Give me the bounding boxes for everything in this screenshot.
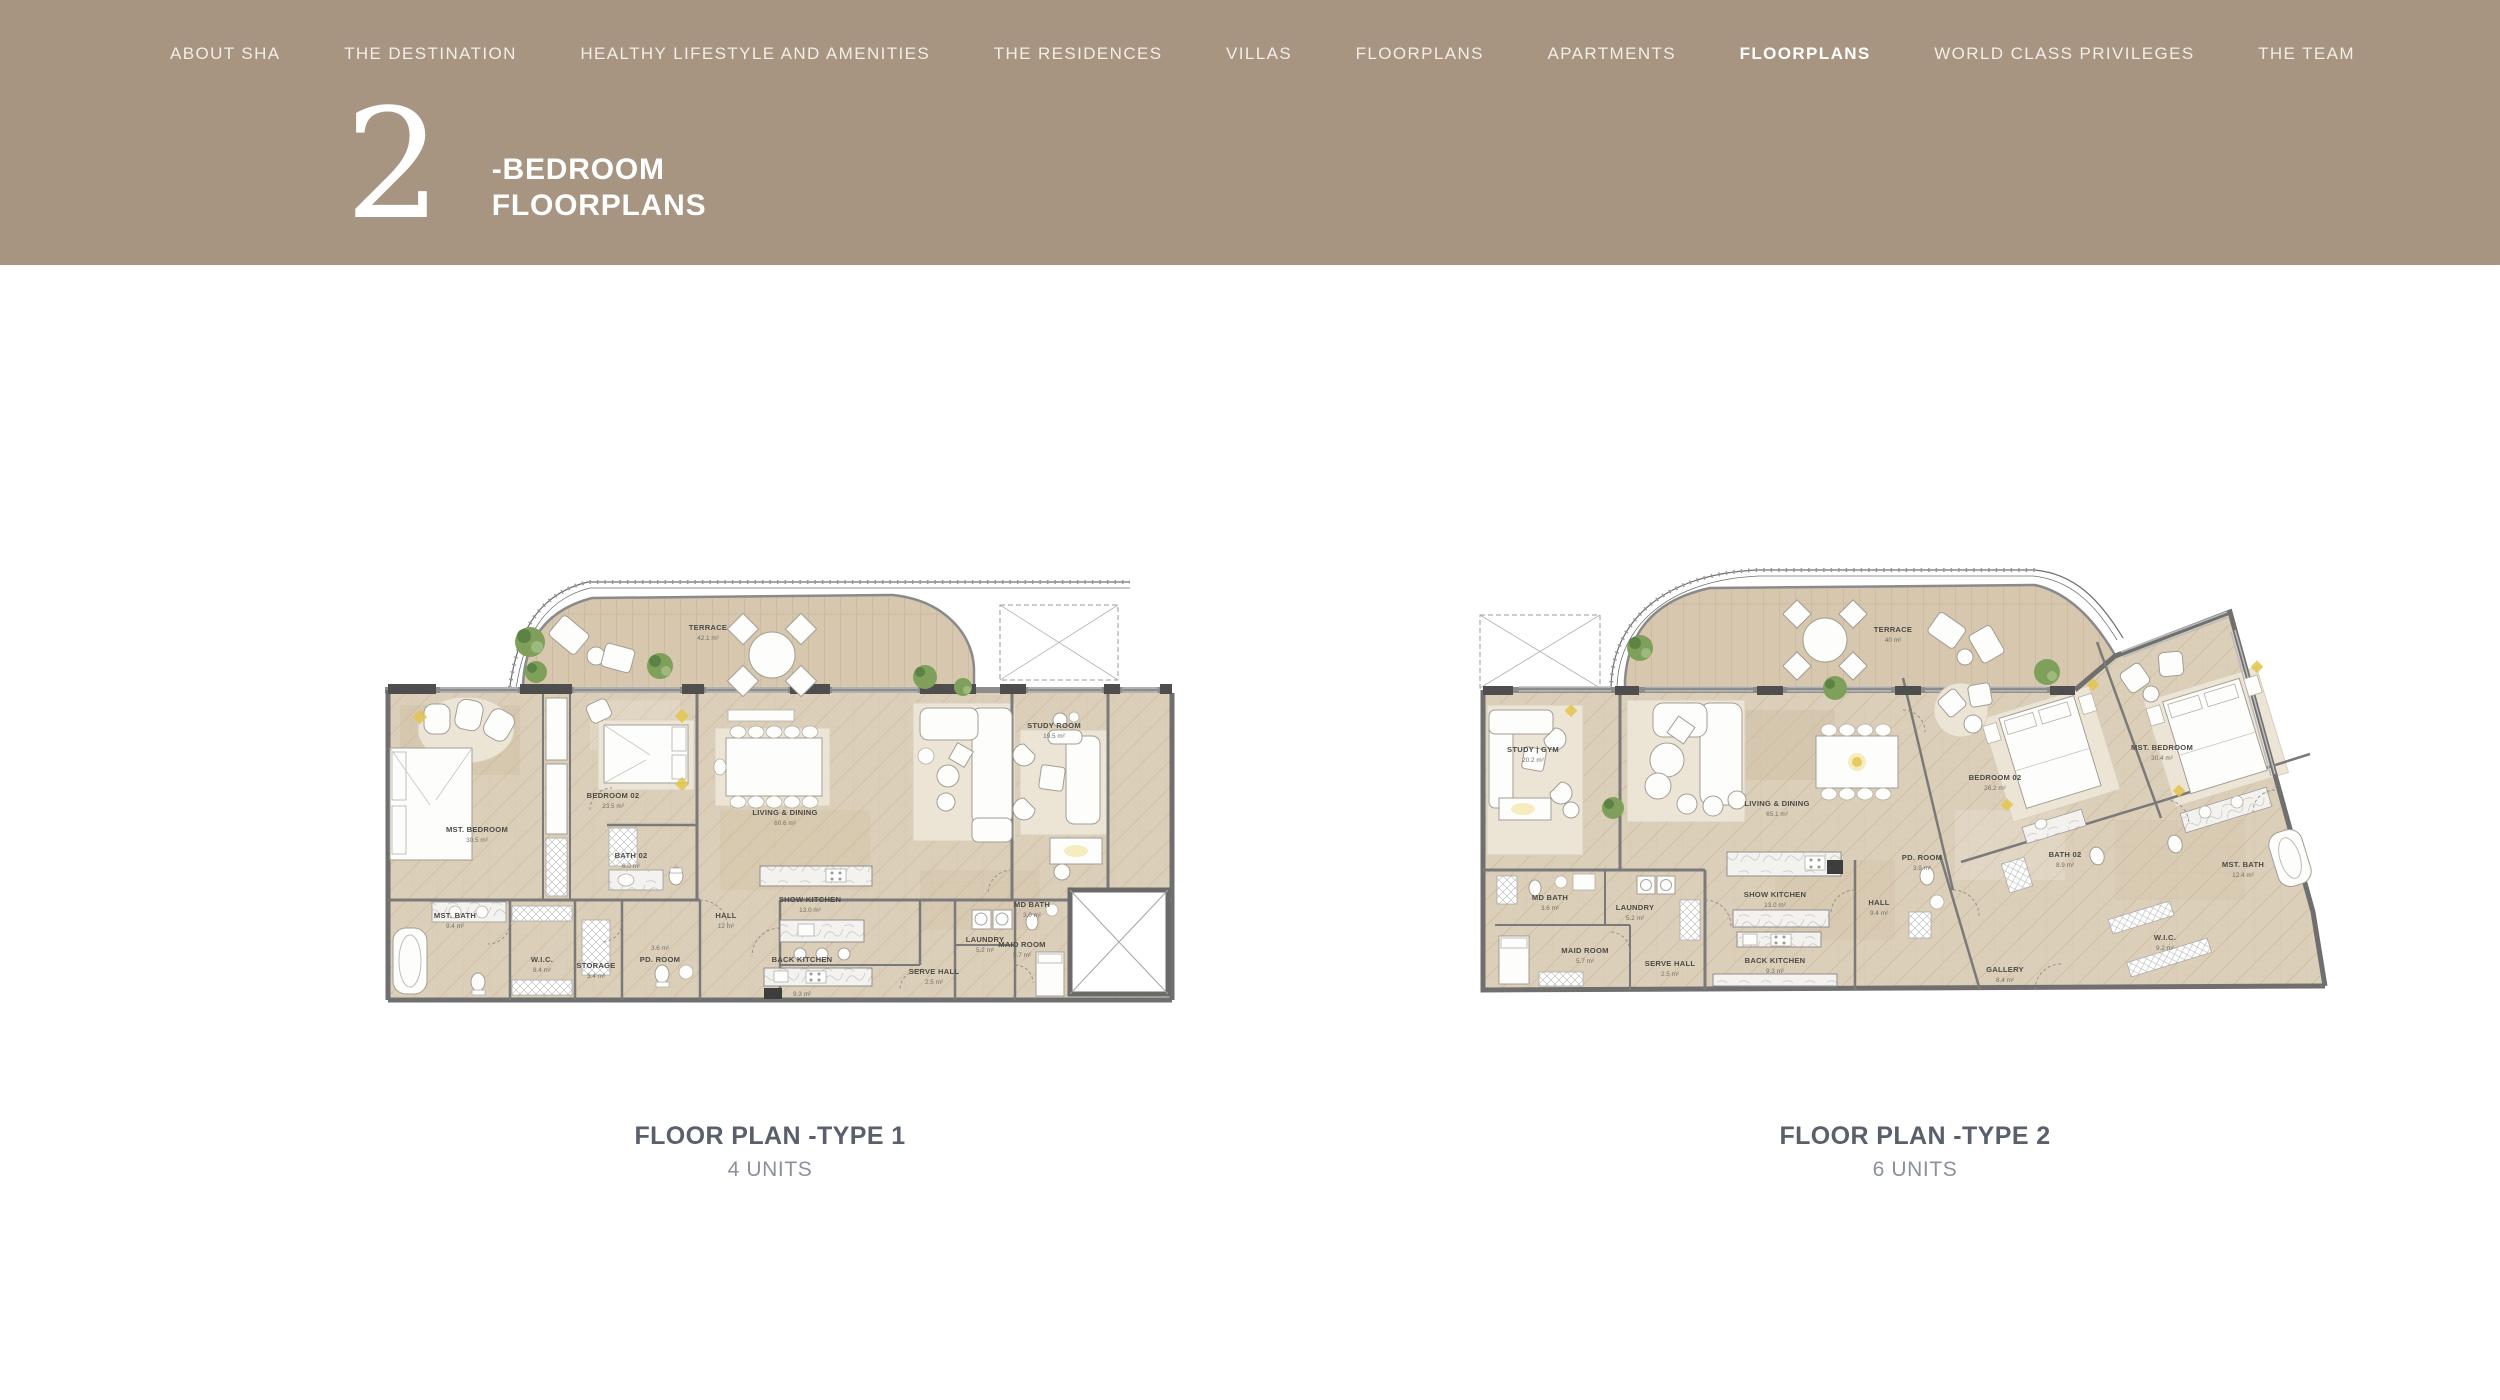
svg-text:2.5 m²: 2.5 m² <box>1661 971 1679 978</box>
plan1-title: FLOOR PLAN -TYPE 1 <box>360 1122 1180 1151</box>
label-terrace: TERRACE <box>689 623 727 632</box>
svg-text:3.0 m²: 3.0 m² <box>1023 912 1041 919</box>
floorplan-type1-drawing: TERRACE 42.1 m² MST. BEDROOM 30.5 m² BED… <box>360 570 1180 1020</box>
svg-text:30.4 m²: 30.4 m² <box>2151 755 2173 762</box>
svg-text:13.0 m²: 13.0 m² <box>799 907 821 914</box>
nav-destination[interactable]: THE DESTINATION <box>344 44 517 64</box>
label-show-kitchen: SHOW KITCHEN <box>779 895 841 904</box>
svg-text:26.2 m²: 26.2 m² <box>1984 785 2006 792</box>
label-bedroom02: BEDROOM 02 <box>587 791 640 800</box>
svg-text:9.3 m²: 9.3 m² <box>793 991 811 998</box>
nav-healthy-lifestyle[interactable]: HEALTHY LIFESTYLE AND AMENITIES <box>580 44 930 64</box>
label-living-dining: LIVING & DINING <box>1744 799 1809 808</box>
svg-text:9.4 m²: 9.4 m² <box>446 923 464 930</box>
label-laundry: LAUNDRY <box>1616 903 1655 912</box>
label-hall: HALL <box>715 911 736 920</box>
svg-text:2.5 m²: 2.5 m² <box>925 979 943 986</box>
svg-text:8.4 m²: 8.4 m² <box>1996 977 2014 984</box>
svg-text:19.5 m²: 19.5 m² <box>1043 733 1065 740</box>
svg-text:9.4 m²: 9.4 m² <box>1870 910 1888 917</box>
nav-apartments[interactable]: APARTMENTS <box>1547 44 1676 64</box>
svg-text:20.2 m²: 20.2 m² <box>1522 757 1544 764</box>
label-bath02: BATH 02 <box>615 851 648 860</box>
nav-residences[interactable]: THE RESIDENCES <box>994 44 1163 64</box>
wardrobe-closets <box>546 698 567 896</box>
title-number: 2 <box>345 100 442 230</box>
plan2-units: 6 UNITS <box>1475 1158 2355 1182</box>
label-back-kitchen: BACK KITCHEN <box>1745 956 1806 965</box>
svg-text:12.4 m²: 12.4 m² <box>2232 872 2254 879</box>
label-wic: W.I.C. <box>2154 933 2176 942</box>
label-maid-room: MAID ROOM <box>1561 946 1608 955</box>
page-title: 2 -BEDROOM FLOORPLANS <box>345 100 706 230</box>
svg-text:3.6 m²: 3.6 m² <box>651 945 669 952</box>
label-mst-bath: MST. BATH <box>2222 860 2264 869</box>
svg-text:9.3 m²: 9.3 m² <box>1766 968 1784 975</box>
svg-text:42.1 m²: 42.1 m² <box>697 635 719 642</box>
label-mst-bedroom: MST. BEDROOM <box>2131 743 2193 752</box>
label-bath02: BATH 02 <box>2049 850 2082 859</box>
title-line2: FLOORPLANS <box>492 188 707 224</box>
nav-the-team[interactable]: THE TEAM <box>2258 44 2355 64</box>
svg-text:9.2 m²: 9.2 m² <box>2156 945 2174 952</box>
plan1-caption: FLOOR PLAN -TYPE 1 4 UNITS <box>360 1122 1180 1182</box>
label-back-kitchen: BACK KITCHEN <box>772 955 833 964</box>
page: ABOUT SHA THE DESTINATION HEALTHY LIFEST… <box>0 0 2500 1400</box>
label-md-bath: MD BATH <box>1532 893 1568 902</box>
plan2-title: FLOOR PLAN -TYPE 2 <box>1475 1122 2355 1151</box>
svg-text:23.5 m²: 23.5 m² <box>602 803 624 810</box>
nav-world-class-privileges[interactable]: WORLD CLASS PRIVILEGES <box>1934 44 2194 64</box>
void-crossed-box <box>1000 605 1118 680</box>
svg-text:3.9 m²: 3.9 m² <box>1913 865 1931 872</box>
nav-about-sha[interactable]: ABOUT SHA <box>170 44 281 64</box>
label-mst-bath: MST. BATH <box>434 911 476 920</box>
label-pd-room: PD. ROOM <box>1902 853 1942 862</box>
label-serve-hall: SERVE HALL <box>909 967 960 976</box>
label-storage: STORAGE <box>576 961 615 970</box>
svg-text:3.4 m²: 3.4 m² <box>587 973 605 980</box>
label-living-dining: LIVING & DINING <box>752 808 817 817</box>
void-crossed-box <box>1480 615 1600 688</box>
nav-floorplans-1[interactable]: FLOORPLANS <box>1356 44 1484 64</box>
label-mst-bedroom: MST. BEDROOM <box>446 825 508 834</box>
svg-text:5.7 m²: 5.7 m² <box>1576 958 1594 965</box>
plan2-caption: FLOOR PLAN -TYPE 2 6 UNITS <box>1475 1122 2355 1182</box>
label-serve-hall: SERVE HALL <box>1645 959 1696 968</box>
label-study-room: STUDY ROOM <box>1027 721 1081 730</box>
label-bedroom02: BEDROOM 02 <box>1969 773 2022 782</box>
svg-text:8.4 m²: 8.4 m² <box>533 967 551 974</box>
header-banner: ABOUT SHA THE DESTINATION HEALTHY LIFEST… <box>0 0 2500 265</box>
svg-text:40 m²: 40 m² <box>1885 637 1901 644</box>
label-maid-room: MAID ROOM <box>998 940 1045 949</box>
label-show-kitchen: SHOW KITCHEN <box>1744 890 1806 899</box>
svg-text:65.1 m²: 65.1 m² <box>1766 811 1788 818</box>
svg-text:5.7 m²: 5.7 m² <box>1013 952 1031 959</box>
label-terrace: TERRACE <box>1874 625 1912 634</box>
nav-floorplans-active[interactable]: FLOORPLANS <box>1740 44 1871 64</box>
svg-text:13.0 m²: 13.0 m² <box>1764 902 1786 909</box>
label-wic: W.I.C. <box>531 955 553 964</box>
label-gallery: GALLERY <box>1986 965 2024 974</box>
svg-text:5.2 m²: 5.2 m² <box>976 947 994 954</box>
nav-villas[interactable]: VILLAS <box>1226 44 1292 64</box>
floorplan-type2: TERRACE 40 m² STUDY | GYM 20.2 m² LIVING… <box>1475 560 2355 1020</box>
main-nav: ABOUT SHA THE DESTINATION HEALTHY LIFEST… <box>170 44 2355 64</box>
plan1-units: 4 UNITS <box>360 1158 1180 1182</box>
label-hall: HALL <box>1868 898 1889 907</box>
floorplan-type1: TERRACE 42.1 m² MST. BEDROOM 30.5 m² BED… <box>360 570 1180 1020</box>
label-pd-room: PD. ROOM <box>640 955 680 964</box>
floorplan-type2-drawing: TERRACE 40 m² STUDY | GYM 20.2 m² LIVING… <box>1475 560 2355 1020</box>
label-study-gym: STUDY | GYM <box>1507 745 1559 754</box>
elevator-shaft <box>1070 890 1168 994</box>
svg-text:6.0 m²: 6.0 m² <box>622 863 640 870</box>
svg-text:5.2 m²: 5.2 m² <box>1626 915 1644 922</box>
svg-text:12 m²: 12 m² <box>718 923 734 930</box>
maid-room-furniture <box>1036 952 1064 996</box>
svg-text:60.6 m²: 60.6 m² <box>774 820 796 827</box>
title-line1: -BEDROOM <box>492 152 707 188</box>
svg-text:3.6 m²: 3.6 m² <box>1541 905 1559 912</box>
svg-text:30.5 m²: 30.5 m² <box>466 837 488 844</box>
svg-text:8.9 m²: 8.9 m² <box>2056 862 2074 869</box>
label-md-bath: MD BATH <box>1014 900 1050 909</box>
title-lines: -BEDROOM FLOORPLANS <box>492 152 707 224</box>
